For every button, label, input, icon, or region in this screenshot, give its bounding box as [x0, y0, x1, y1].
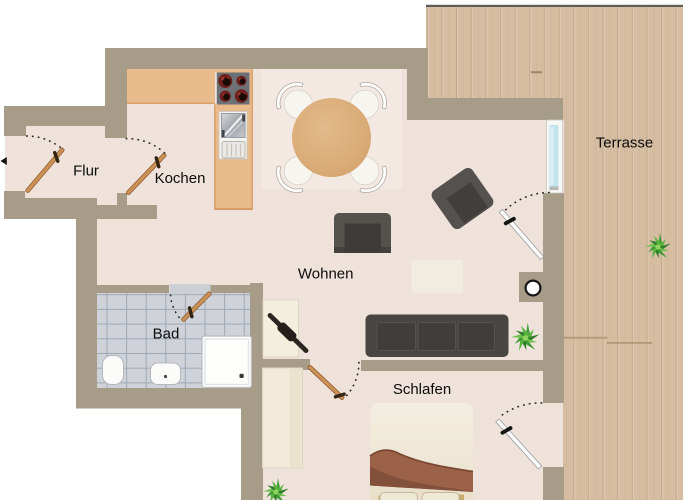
svg-text:Wohnen: Wohnen [298, 266, 354, 283]
svg-text:Bad: Bad [153, 326, 180, 343]
svg-text:Schlafen: Schlafen [393, 381, 451, 398]
svg-text:Kochen: Kochen [155, 170, 206, 187]
svg-text:Terrasse: Terrasse [596, 135, 654, 152]
svg-text:Flur: Flur [73, 163, 99, 180]
